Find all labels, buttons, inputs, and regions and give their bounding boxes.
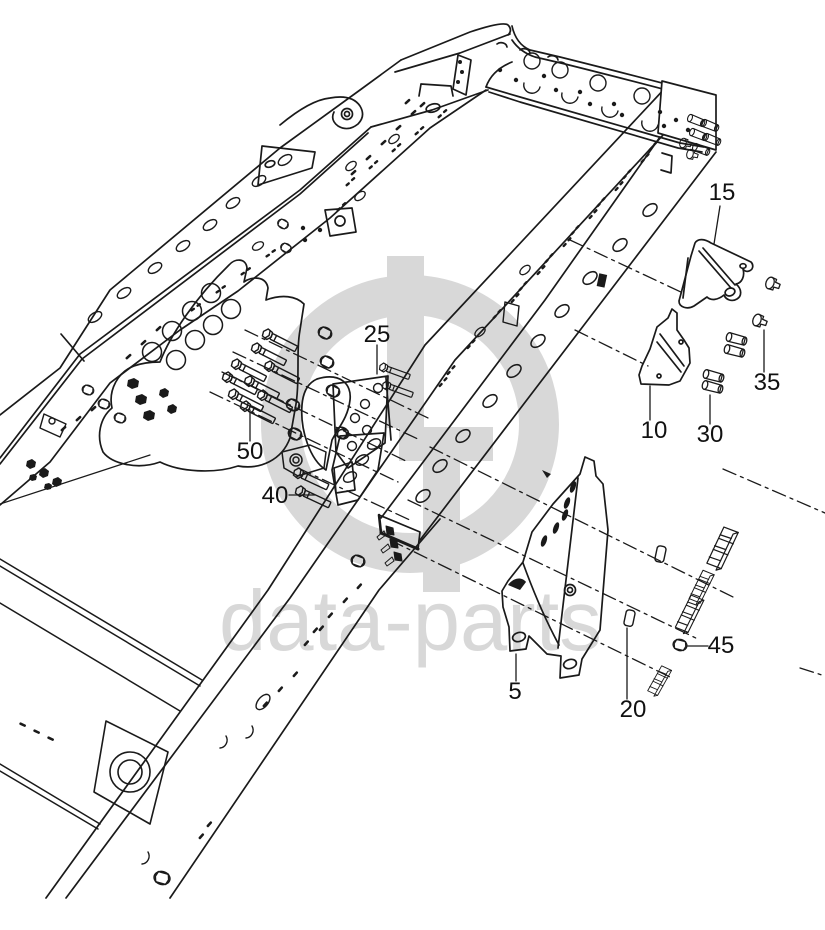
svg-text:25: 25 [364, 321, 391, 348]
svg-text:35: 35 [754, 369, 781, 396]
svg-text:45: 45 [708, 632, 735, 659]
svg-text:40: 40 [262, 482, 289, 509]
svg-text:data-parts: data-parts [219, 574, 602, 669]
svg-text:50: 50 [237, 438, 264, 465]
svg-text:10: 10 [641, 417, 668, 444]
svg-text:15: 15 [709, 179, 736, 206]
svg-text:5: 5 [508, 678, 521, 705]
svg-text:20: 20 [620, 696, 647, 723]
svg-text:30: 30 [697, 421, 724, 448]
